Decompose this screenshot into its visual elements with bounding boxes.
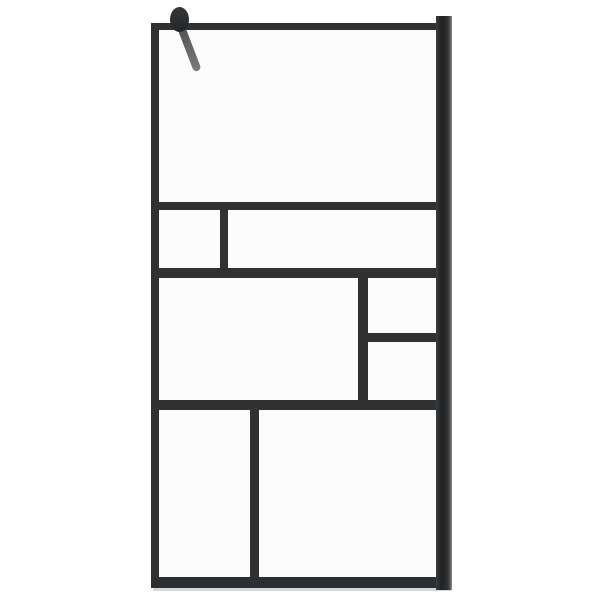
frame-top-rail xyxy=(151,23,436,30)
glass-panel-band3-left xyxy=(159,278,358,400)
glass-panel-band2-right xyxy=(228,210,436,268)
frame-rail-right-short xyxy=(366,333,436,342)
frame-left-stile xyxy=(151,23,159,588)
frame-divider-band3 xyxy=(358,276,368,400)
glass-panel-band3-right-top xyxy=(368,278,436,333)
glass-panel-band3-right-bottom xyxy=(368,342,436,400)
frame-divider-band2 xyxy=(220,210,228,268)
floor-shadow xyxy=(153,588,452,591)
glass-panel-bottom-right xyxy=(259,410,436,577)
frame-rail-lower xyxy=(159,400,436,410)
glass-panel-bottom-left xyxy=(159,410,250,577)
frame-divider-bottom xyxy=(250,410,259,577)
frame-rail-middle xyxy=(159,268,436,278)
frame-bottom-rail xyxy=(151,577,436,588)
glass-panel-top xyxy=(159,30,436,202)
product-image xyxy=(0,0,600,600)
glass-panel-band2-left xyxy=(159,210,220,268)
support-arm-pivot-knob xyxy=(170,7,189,32)
wall-profile-post xyxy=(436,16,452,590)
frame-rail-upper xyxy=(159,202,436,210)
scene xyxy=(0,0,600,600)
